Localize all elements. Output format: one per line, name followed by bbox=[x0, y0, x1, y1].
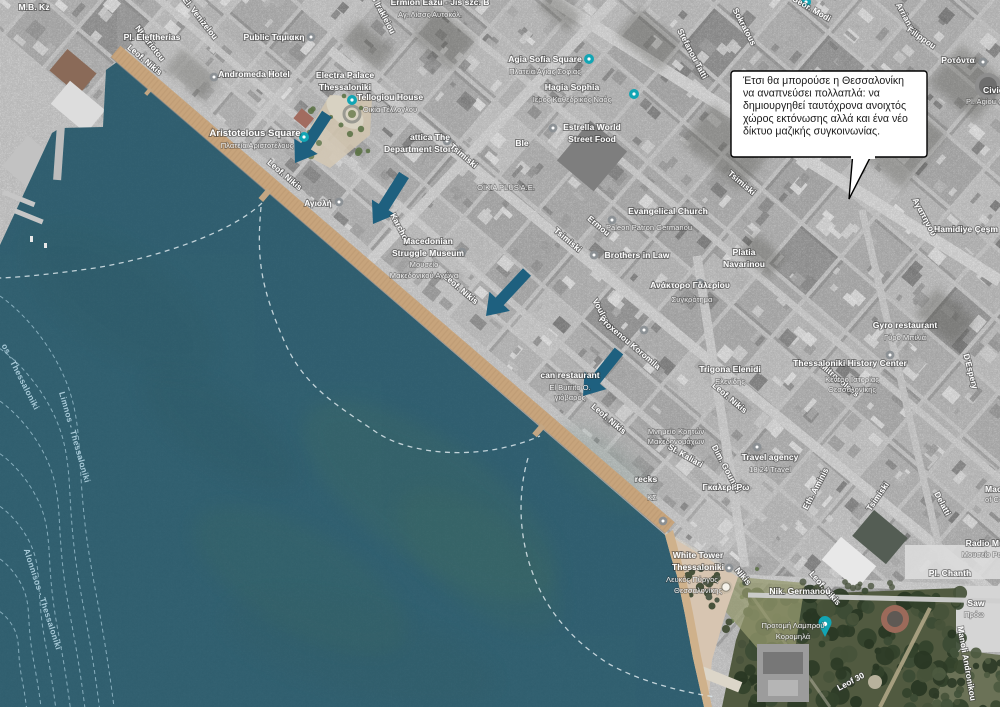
svg-text:Trigona Elenidi: Trigona Elenidi bbox=[699, 364, 761, 374]
svg-text:Platia: Platia bbox=[733, 247, 756, 257]
svg-text:Macedonian: Macedonian bbox=[403, 236, 453, 246]
svg-text:Aristotelous Square: Aristotelous Square bbox=[209, 128, 300, 139]
svg-text:White Tower: White Tower bbox=[673, 550, 724, 560]
svg-text:Struggle Museum: Struggle Museum bbox=[392, 248, 464, 258]
svg-text:Ροτόντα: Ροτόντα bbox=[941, 55, 975, 65]
svg-text:Οικία Τέλλογλου: Οικία Τέλλογλου bbox=[363, 105, 417, 114]
svg-text:Κέντρο Ιστορίας: Κέντρο Ιστορίας bbox=[825, 375, 879, 384]
svg-text:Θεσσαλονίκης: Θεσσαλονίκης bbox=[674, 586, 722, 595]
svg-text:Pl. Agiou Geor: Pl. Agiou Geor bbox=[966, 97, 1000, 106]
svg-text:Ιερός Καθεδρικός Ναός: Ιερός Καθεδρικός Ναός bbox=[533, 95, 612, 104]
svg-text:Γκαλερί Ρω: Γκαλερί Ρω bbox=[703, 482, 750, 492]
svg-text:Αγιολή: Αγιολή bbox=[304, 198, 332, 208]
svg-text:Estrella World: Estrella World bbox=[563, 122, 621, 132]
svg-text:Radio Mu: Radio Mu bbox=[966, 538, 1000, 548]
svg-text:Πλατεία Αριστοτέλους: Πλατεία Αριστοτέλους bbox=[221, 141, 294, 150]
svg-text:ΚΣ: ΚΣ bbox=[647, 493, 657, 502]
svg-text:Ermion Eazu - Jis szc. B: Ermion Eazu - Jis szc. B bbox=[391, 0, 490, 7]
svg-text:Thessaloniki History Center: Thessaloniki History Center bbox=[793, 358, 907, 368]
svg-text:Μουσείο Ραδ.: Μουσείο Ραδ. bbox=[962, 550, 1000, 559]
svg-text:Thessaloniki: Thessaloniki bbox=[319, 82, 371, 92]
svg-text:Ελενίδης: Ελενίδης bbox=[715, 377, 745, 386]
svg-text:Έτσι θα μπορούσε η Θεσσαλονίκη: Έτσι θα μπορούσε η Θεσσαλονίκη bbox=[742, 75, 904, 87]
svg-text:δίκτυο μαζικής συγκοινωνίας.: δίκτυο μαζικής συγκοινωνίας. bbox=[743, 125, 880, 137]
svg-text:Λευκός Πύργος: Λευκός Πύργος bbox=[666, 575, 718, 584]
svg-text:Travel agency: Travel agency bbox=[742, 452, 799, 462]
svg-text:Gyro restaurant: Gyro restaurant bbox=[873, 320, 938, 330]
svg-text:ΟΙΚΙΑ ΡLUS A.E.: ΟΙΚΙΑ ΡLUS A.E. bbox=[477, 183, 535, 192]
svg-text:recks: recks bbox=[635, 474, 658, 484]
svg-text:Navarinou: Navarinou bbox=[723, 259, 765, 269]
svg-text:M.B. Kz: M.B. Kz bbox=[18, 2, 49, 12]
svg-text:Department Store: Department Store bbox=[384, 144, 456, 154]
svg-text:Public Ταμιακη: Public Ταμιακη bbox=[243, 32, 304, 42]
svg-text:can restaurant: can restaurant bbox=[540, 370, 599, 380]
svg-text:Hamidiye Çeşm: Hamidiye Çeşm bbox=[934, 224, 998, 234]
svg-text:Συγκρότημα: Συγκρότημα bbox=[672, 295, 713, 304]
svg-text:Evangelical Church: Evangelical Church bbox=[628, 206, 708, 216]
svg-text:Αγ. Λίσσς Αυτοκόλ.: Αγ. Λίσσς Αυτοκόλ. bbox=[398, 10, 462, 19]
svg-text:Μουσείο: Μουσείο bbox=[410, 260, 439, 269]
svg-text:Electra Palace: Electra Palace bbox=[316, 70, 375, 80]
svg-text:Pl. Eleftherias: Pl. Eleftherias bbox=[124, 32, 181, 42]
svg-text:χώρος εκτόνωσης αλλά και ένα ν: χώρος εκτόνωσης αλλά και ένα νέο bbox=[743, 113, 908, 125]
svg-text:Θεσσαλονίκης: Θεσσαλονίκης bbox=[828, 385, 876, 394]
svg-text:γιόβαρός: γιόβαρός bbox=[555, 393, 586, 402]
svg-text:Mace: Mace bbox=[985, 484, 1000, 494]
svg-text:Tellogiou House: Tellogiou House bbox=[357, 92, 423, 102]
svg-text:Pl. Chanth: Pl. Chanth bbox=[929, 568, 972, 578]
svg-text:Thessaloniki: Thessaloniki bbox=[672, 562, 724, 572]
svg-text:Andromeda Hotel: Andromeda Hotel bbox=[218, 69, 290, 79]
svg-text:18 24 Travel: 18 24 Travel bbox=[749, 465, 791, 474]
svg-text:Saw: Saw bbox=[967, 598, 985, 608]
svg-text:Hagia Sophia: Hagia Sophia bbox=[545, 82, 600, 92]
svg-text:Γύρο Μπιλιά: Γύρο Μπιλιά bbox=[884, 333, 927, 342]
svg-text:Ανάκτορο Γαλερίου: Ανάκτορο Γαλερίου bbox=[650, 280, 730, 290]
svg-text:Civic ce: Civic ce bbox=[983, 85, 1000, 95]
svg-text:attica The: attica The bbox=[410, 132, 450, 142]
svg-text:Προτομή Λαμπρού: Προτομή Λαμπρού bbox=[761, 621, 824, 630]
svg-text:Μακεδονικού Αγώνα: Μακεδονικού Αγώνα bbox=[390, 271, 459, 280]
svg-text:of C: of C bbox=[985, 495, 999, 504]
svg-text:να αναπνεύσει πολλαπλά: να: να αναπνεύσει πολλαπλά: να bbox=[743, 88, 880, 100]
svg-text:Nik. Germanou: Nik. Germanou bbox=[769, 586, 830, 596]
svg-text:Κορομηλά: Κορομηλά bbox=[776, 632, 811, 641]
svg-text:Street Food: Street Food bbox=[568, 134, 616, 144]
svg-text:δημιουργηθεί ταυτόχρονα ανοιχτ: δημιουργηθεί ταυτόχρονα ανοιχτός bbox=[743, 100, 906, 112]
svg-text:Πρόω: Πρόω bbox=[964, 610, 984, 619]
svg-text:Brothers in Law: Brothers in Law bbox=[605, 250, 670, 260]
svg-text:Μνημείο Κρητών: Μνημείο Κρητών bbox=[648, 427, 705, 436]
svg-text:Πλατεία Αγίας Σοφίας: Πλατεία Αγίας Σοφίας bbox=[509, 67, 581, 76]
svg-text:Agia Sofia Square: Agia Sofia Square bbox=[508, 54, 582, 64]
svg-text:Ble: Ble bbox=[515, 138, 529, 148]
svg-text:Paleon Patron Germanou: Paleon Patron Germanou bbox=[606, 223, 692, 232]
svg-text:El Burrito Ο.: El Burrito Ο. bbox=[549, 383, 590, 392]
